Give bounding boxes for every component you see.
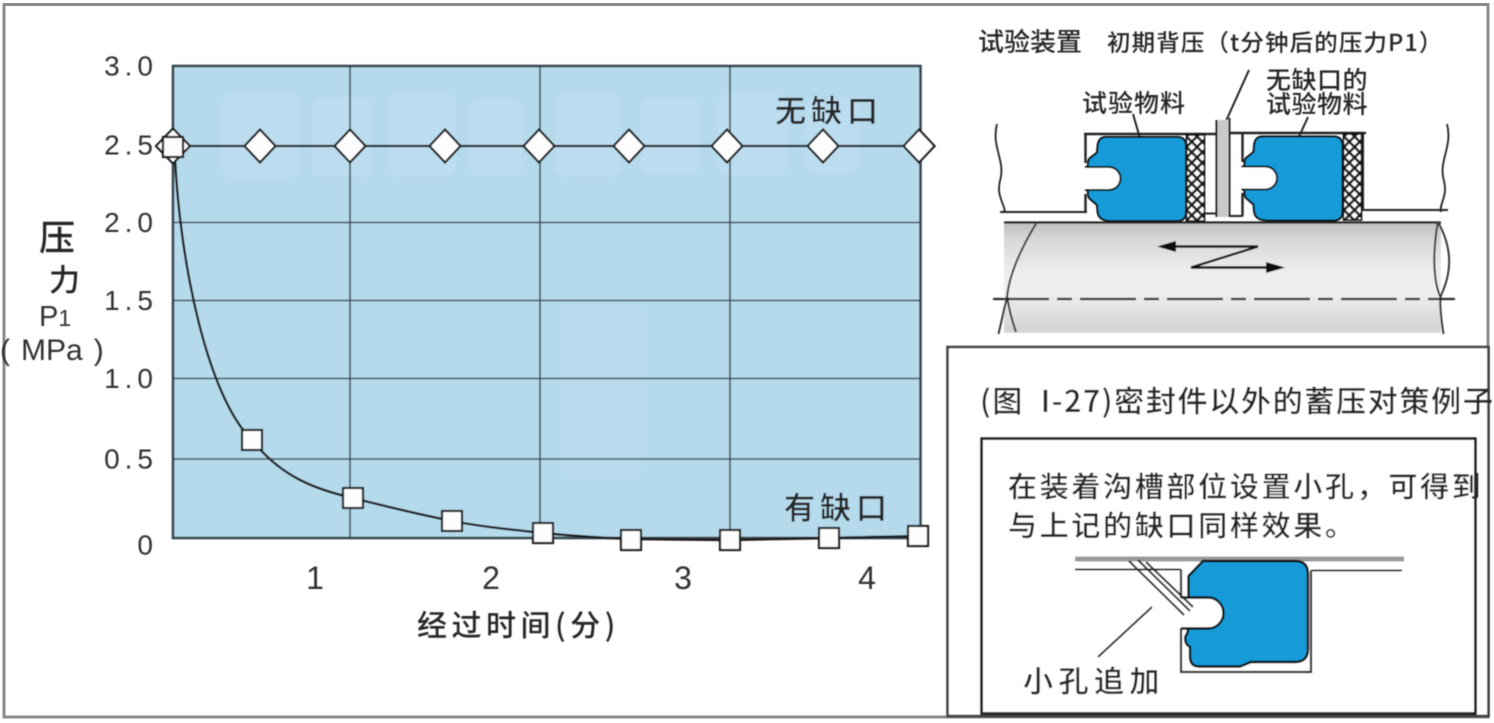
svg-text:1: 1: [306, 560, 324, 596]
svg-text:2.0: 2.0: [104, 207, 158, 238]
svg-text:1.5: 1.5: [104, 285, 158, 316]
svg-text:4: 4: [858, 560, 876, 596]
svg-text:1.0: 1.0: [104, 363, 158, 394]
svg-text:P1: P1: [39, 301, 71, 333]
svg-text:0.5: 0.5: [104, 444, 158, 475]
svg-text:3.0: 3.0: [104, 51, 158, 82]
svg-text:0: 0: [137, 530, 158, 561]
svg-text:3: 3: [674, 560, 692, 596]
svg-text:2.5: 2.5: [104, 130, 158, 161]
svg-text:2: 2: [482, 560, 500, 596]
